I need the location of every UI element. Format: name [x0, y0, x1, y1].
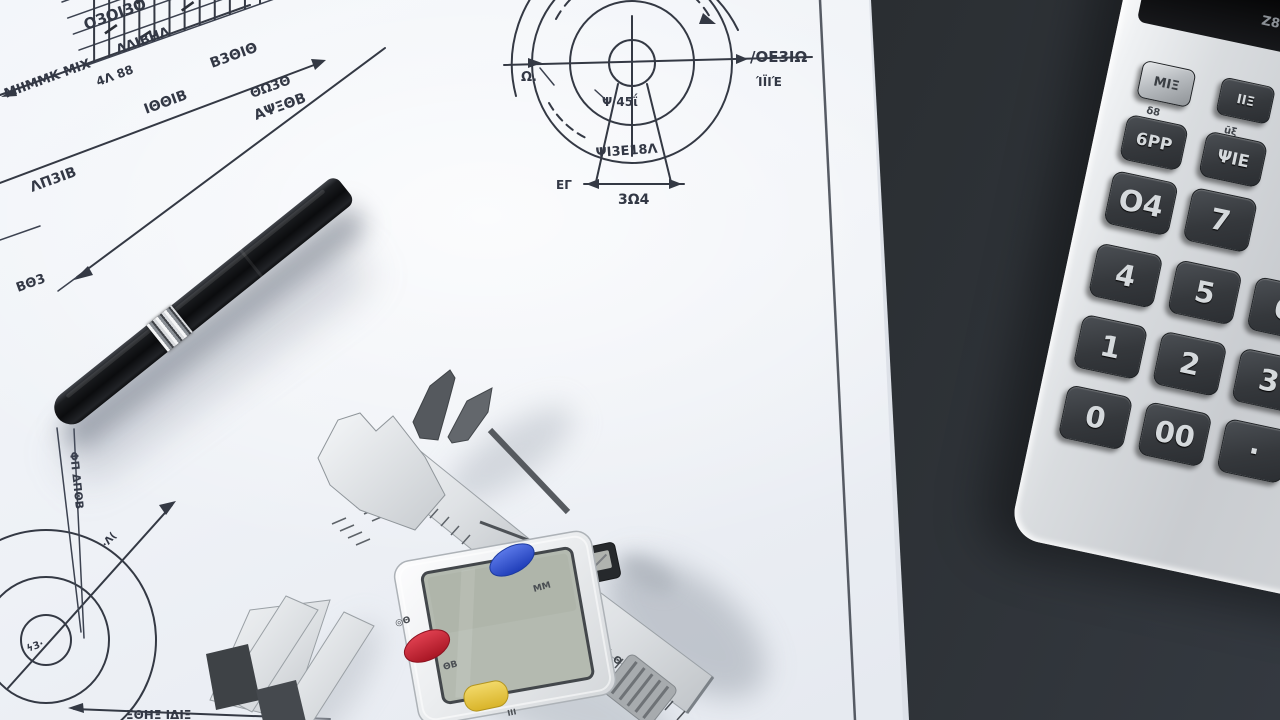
calc-key-5: 5 — [1167, 259, 1243, 326]
calculator-display-mark: Ζ8 — [1260, 13, 1280, 32]
calc-key-0: 0 — [1058, 384, 1134, 451]
calc-key-grr: 6ΡΡ — [1119, 114, 1189, 172]
calc-key-memory: ΜΙΞ — [1136, 60, 1197, 108]
calc-key-1: 1 — [1073, 314, 1149, 381]
calc-key-6: 6 — [1246, 276, 1280, 343]
calc-key-2: 2 — [1152, 331, 1228, 398]
calc-key-o4: Ο4 — [1103, 170, 1179, 237]
calc-key-wie: ΨΙΕ — [1198, 130, 1268, 188]
calc-key-sqrt: ΙΙΞ — [1215, 77, 1276, 125]
desk-scene: ΟЗΟΙЗΟ ΛΛΙΒΗΛ ΜΙΙΜΜΚ ΜΙΧ 4Λ 88 ΙΘΘΙΒ Β3Θ… — [0, 0, 1280, 720]
calc-key-3: 3 — [1231, 347, 1280, 414]
calc-key-00: 00 — [1137, 401, 1213, 468]
button-tag-yellow: ΙΙΙ — [507, 707, 518, 718]
calc-key-7: 7 — [1182, 187, 1258, 254]
jaw-blade-right — [448, 388, 492, 443]
jaw-blade-left — [413, 370, 455, 440]
calc-key-decimal: · — [1216, 418, 1280, 485]
calc-key-4: 4 — [1088, 242, 1164, 309]
